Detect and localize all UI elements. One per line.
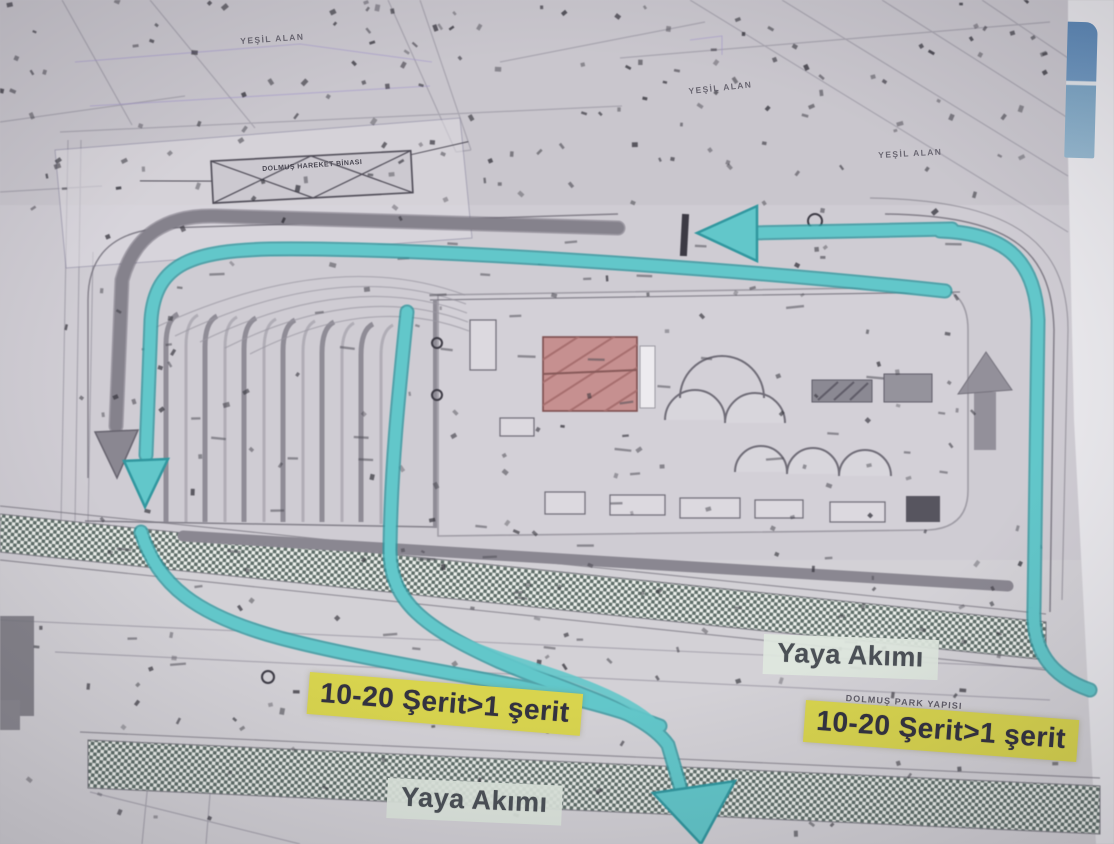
pedestrian-flow-label-right: Yaya Akımı <box>763 634 939 680</box>
slide-photo-site-plan: YEŞİL ALAN YEŞİL ALAN YEŞİL ALAN DOLMUŞ … <box>0 0 1114 844</box>
screen-edge-blue-bar <box>1064 22 1098 159</box>
pedestrian-flow-label-bottom: Yaya Akımı <box>386 778 562 826</box>
flow-west-shaft <box>750 229 952 233</box>
